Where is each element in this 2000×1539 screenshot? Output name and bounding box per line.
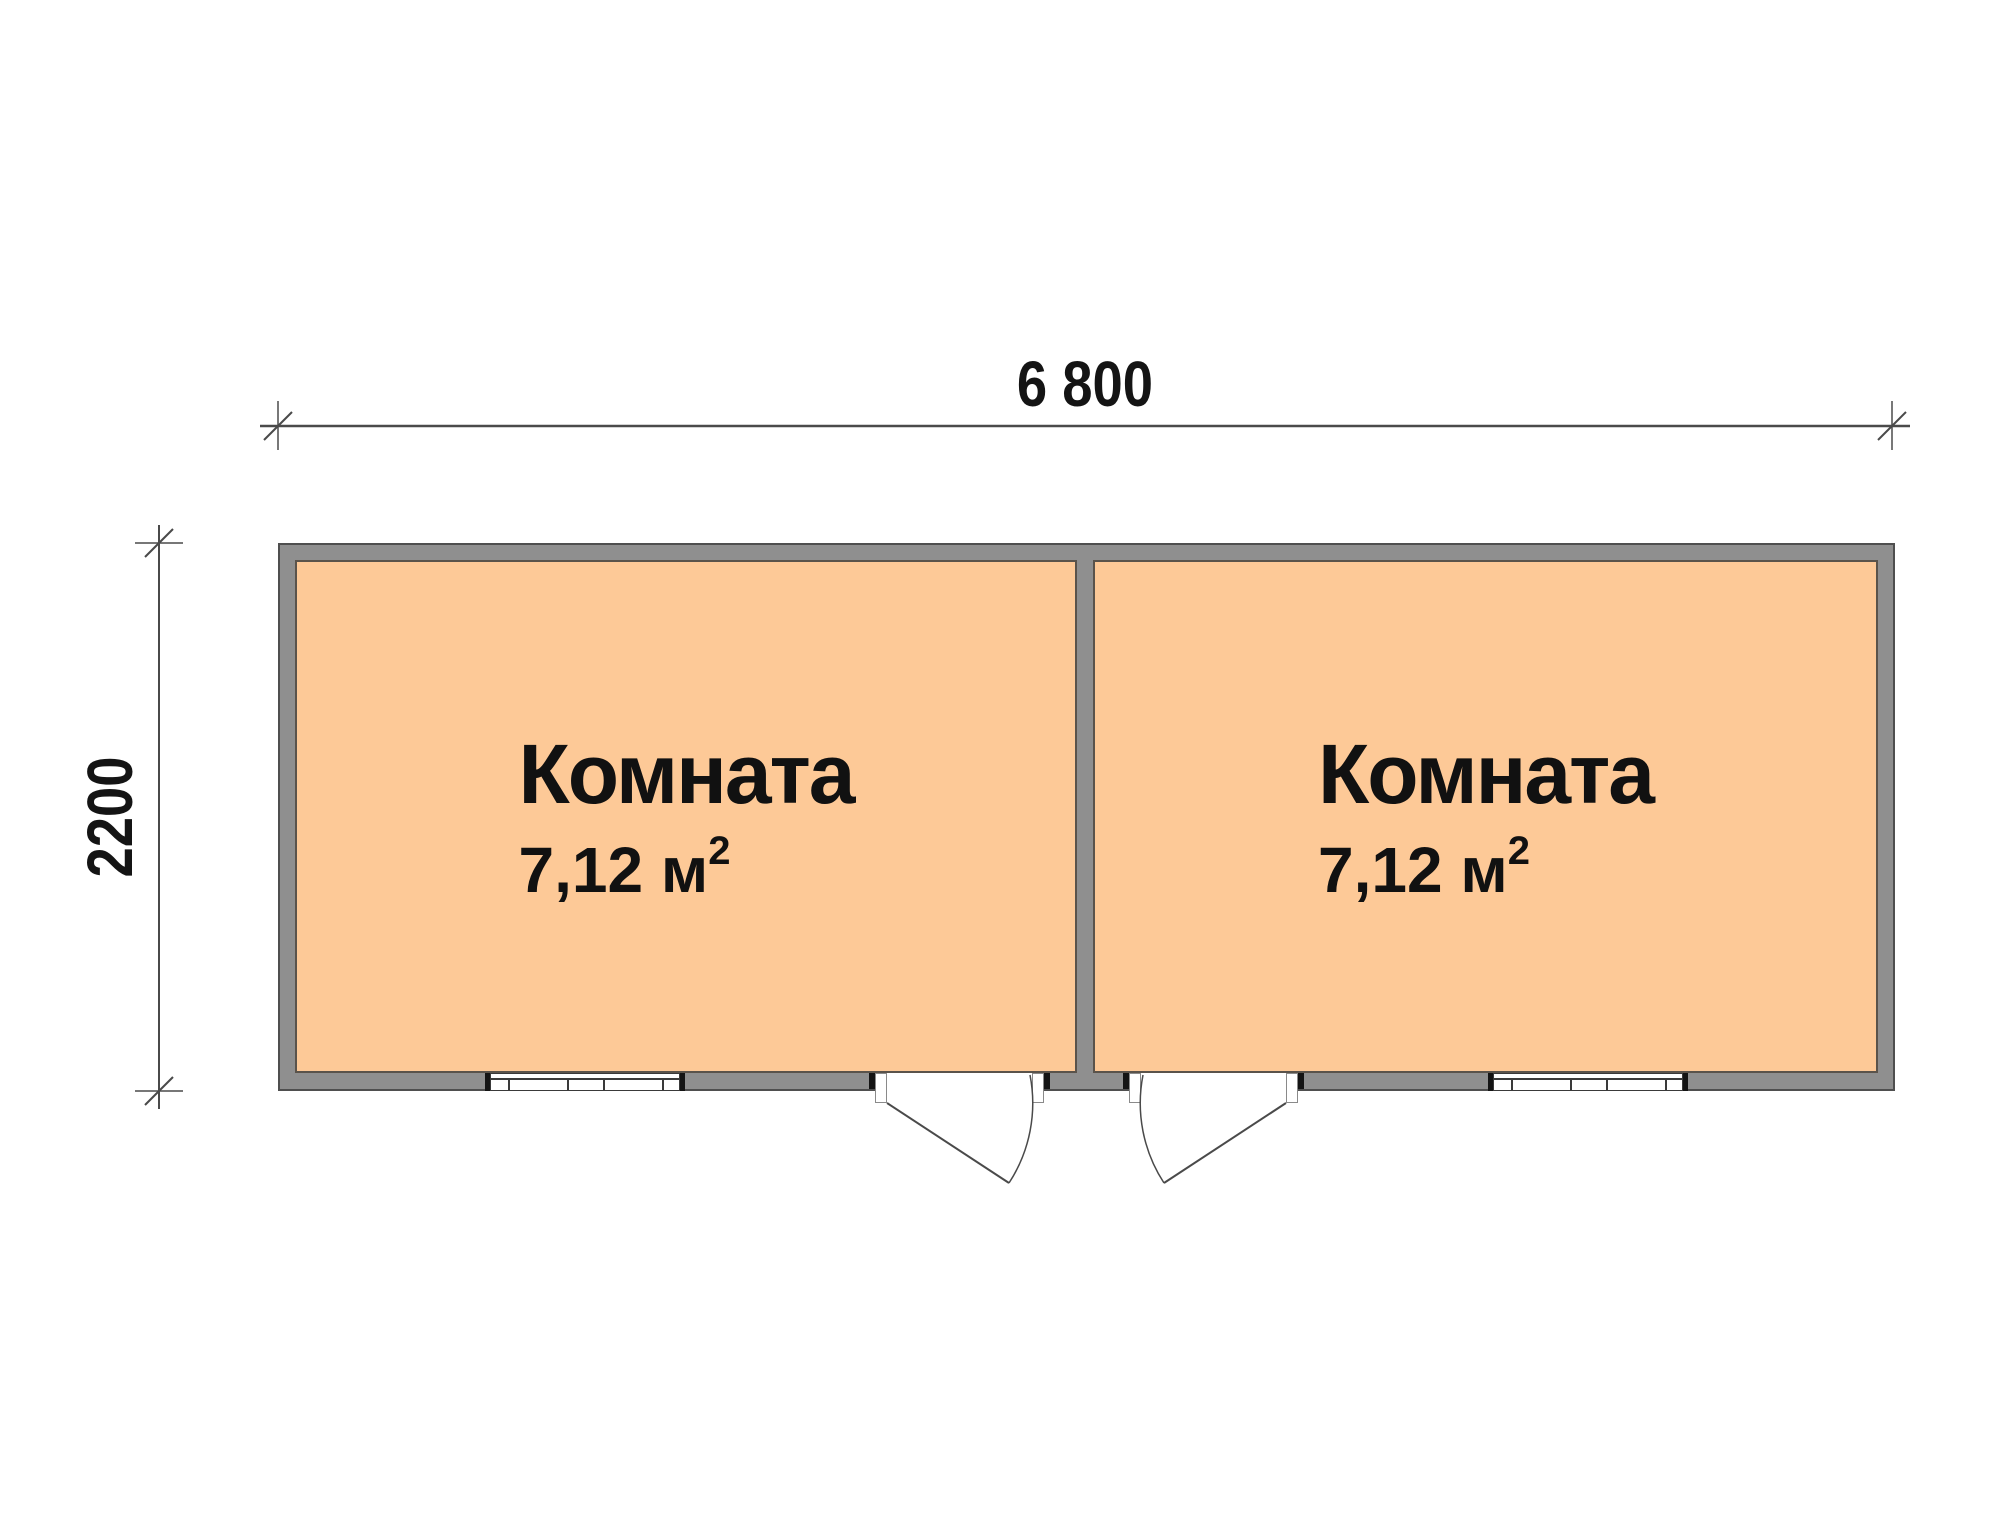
door-jamb — [1286, 1073, 1298, 1103]
wall-end-cap — [1298, 1073, 1304, 1089]
door-jamb — [875, 1073, 887, 1103]
room-left-area-exponent: 2 — [708, 829, 730, 873]
window-end-cap — [1488, 1073, 1493, 1091]
window-mullion — [662, 1078, 664, 1090]
dimension-tick — [264, 412, 292, 440]
dimension-tick — [145, 529, 173, 557]
dimension-tick — [1878, 412, 1906, 440]
window-pane-line — [491, 1078, 679, 1080]
room-left-area-value: 7,12 м — [519, 834, 709, 906]
window-mullion — [1665, 1078, 1667, 1090]
room-right-area: 7,12 м2 — [1318, 838, 1530, 902]
room-right-text-block: Комната 7,12 м2 — [1318, 732, 1653, 902]
door-leaf-line — [887, 1103, 1009, 1183]
floor-plan-canvas: 6 800 2200 Комната 7,12 м2 Комната 7,12 … — [0, 0, 2000, 1539]
window-pane-line — [1494, 1078, 1682, 1080]
window-mullion — [1511, 1078, 1513, 1090]
room-right: Комната 7,12 м2 — [1093, 560, 1878, 1073]
window-end-cap — [680, 1073, 685, 1091]
door-jamb — [1129, 1073, 1141, 1103]
room-left: Комната 7,12 м2 — [295, 560, 1077, 1073]
dimension-tick — [145, 1077, 173, 1105]
window-end-cap — [1683, 1073, 1688, 1091]
window-mullion — [508, 1078, 510, 1090]
door-opening-right — [1141, 1073, 1286, 1093]
door-leaf-line — [1164, 1103, 1286, 1183]
window-mullion — [1606, 1078, 1608, 1090]
window-mullion — [567, 1078, 569, 1090]
height-dimension-label: 2200 — [75, 685, 145, 949]
window-left — [490, 1073, 680, 1091]
window-right — [1493, 1073, 1683, 1091]
door-jamb — [1032, 1073, 1044, 1103]
room-left-text-block: Комната 7,12 м2 — [519, 732, 854, 902]
room-right-area-exponent: 2 — [1508, 829, 1530, 873]
room-right-name: Комната — [1318, 732, 1653, 816]
room-left-area: 7,12 м2 — [519, 838, 731, 902]
window-mullion — [1570, 1078, 1572, 1090]
window-mullion — [603, 1078, 605, 1090]
room-right-area-value: 7,12 м — [1318, 834, 1508, 906]
wall-end-cap — [1044, 1073, 1050, 1089]
door-opening-left — [887, 1073, 1032, 1093]
width-dimension-label: 6 800 — [915, 352, 1255, 416]
window-end-cap — [485, 1073, 490, 1091]
room-left-name: Комната — [519, 732, 854, 816]
